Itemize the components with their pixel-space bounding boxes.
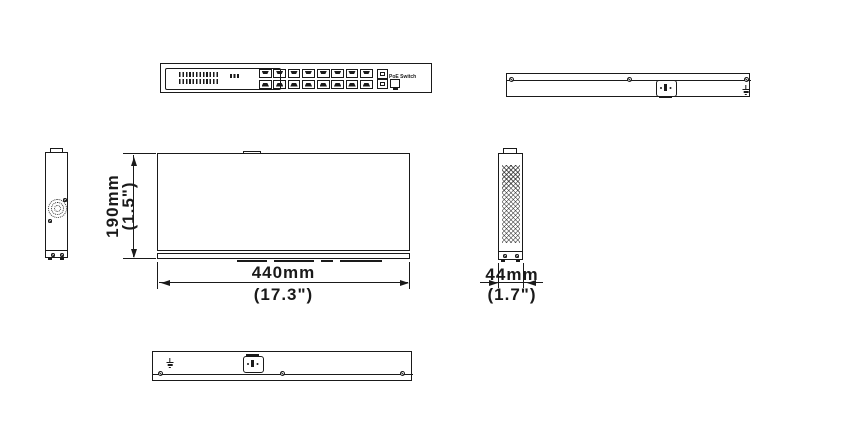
rubber-foot — [501, 260, 505, 262]
power-inlet-icon — [243, 356, 264, 373]
dim-width-mm: 440mm — [193, 264, 374, 281]
ext-line-bottom — [123, 258, 156, 259]
side-view-right — [498, 153, 523, 260]
rj45-port-icon — [346, 69, 359, 78]
screw-icon — [280, 371, 285, 376]
rj45-port-icon — [302, 80, 315, 89]
rj45-port-icon — [360, 69, 373, 78]
top-view-front-strip — [157, 253, 410, 259]
screw-icon — [400, 371, 405, 376]
led-indicators-row2-icon — [179, 79, 219, 84]
rj45-port-icon — [259, 80, 272, 89]
side-foot-line — [46, 250, 67, 251]
strip-detail-dash — [340, 260, 382, 262]
rj45-port-icon — [346, 80, 359, 89]
rj45-port-group-1 — [259, 69, 315, 89]
screw-icon — [509, 77, 514, 82]
rj45-port-icon — [302, 69, 315, 78]
led-indicators-row1-icon — [179, 72, 219, 77]
power-inlet-bar — [659, 96, 672, 98]
dim-arrow-right-icon — [400, 280, 412, 286]
rubber-foot — [516, 260, 520, 262]
ext-line-top — [123, 153, 156, 154]
fan-grille-icon — [54, 205, 61, 212]
dim-arrow-left-icon — [158, 280, 170, 286]
side-view-left — [45, 152, 68, 258]
screw-icon — [744, 77, 749, 82]
screw-icon — [503, 254, 507, 258]
rj45-port-icon — [273, 80, 286, 89]
dim-line-width — [159, 282, 408, 283]
screw-icon — [60, 253, 64, 257]
rj45-port-icon — [288, 80, 301, 89]
rj45-port-icon — [331, 80, 344, 89]
rj45-port-icon — [259, 69, 272, 78]
strip-detail-dash — [321, 260, 333, 262]
dim-height-in: (1.5") — [120, 161, 138, 251]
screw-icon — [158, 371, 163, 376]
top-view — [157, 153, 410, 251]
front-panel-label: PoE Switch — [389, 74, 416, 80]
screw-icon — [627, 77, 632, 82]
rj45-port-group-2 — [317, 69, 373, 89]
dimension-drawing-canvas: PoE Switch — [0, 0, 866, 448]
brand-logo-icon — [230, 74, 240, 78]
rear-view-bottom — [152, 351, 412, 381]
sfp-port-icon — [377, 79, 388, 89]
rj45-port-icon — [273, 69, 286, 78]
screw-icon — [63, 198, 67, 202]
rj45-port-icon — [317, 69, 330, 78]
console-port-icon — [390, 79, 400, 88]
front-view: PoE Switch — [160, 63, 432, 93]
rubber-foot — [48, 258, 52, 260]
power-inlet-icon — [656, 80, 677, 97]
vent-hatch-icon — [502, 165, 520, 243]
screw-icon — [51, 253, 55, 257]
sfp-port-icon — [377, 69, 388, 79]
screw-icon — [515, 254, 519, 258]
screw-icon — [48, 219, 52, 223]
dim-depth-in: (1.7") — [477, 286, 547, 303]
rubber-foot — [60, 258, 64, 260]
strip-detail-dash — [237, 260, 267, 262]
side-foot-line — [499, 251, 522, 252]
rj45-port-icon — [317, 80, 330, 89]
ground-symbol-icon — [166, 358, 174, 369]
console-port-tab — [393, 88, 398, 90]
rj45-port-icon — [288, 69, 301, 78]
strip-detail-dash — [274, 260, 314, 262]
rj45-port-icon — [331, 69, 344, 78]
dim-width-in: (17.3") — [193, 286, 374, 303]
rj45-port-icon — [360, 80, 373, 89]
rear-view-top — [506, 73, 750, 97]
dim-depth-mm: 44mm — [477, 266, 547, 283]
ground-symbol-icon — [742, 85, 750, 96]
